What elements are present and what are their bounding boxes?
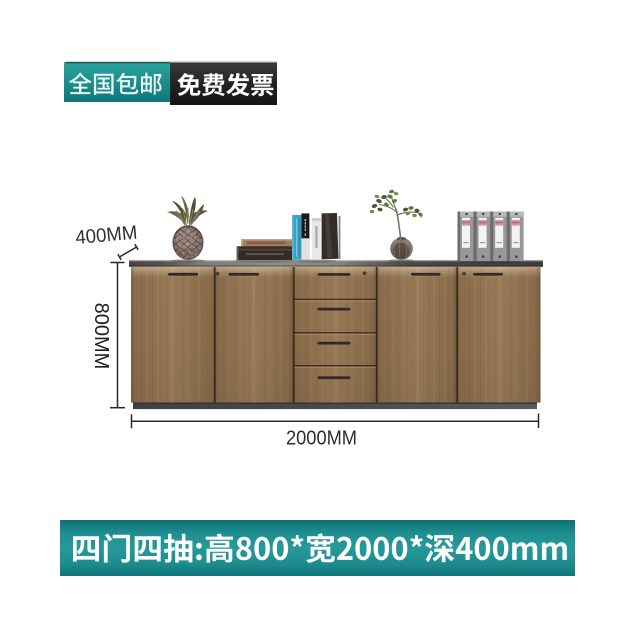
svg-text:800MM: 800MM — [90, 303, 112, 370]
svg-text:2000MM: 2000MM — [286, 428, 357, 450]
svg-text:400MM: 400MM — [75, 222, 139, 249]
